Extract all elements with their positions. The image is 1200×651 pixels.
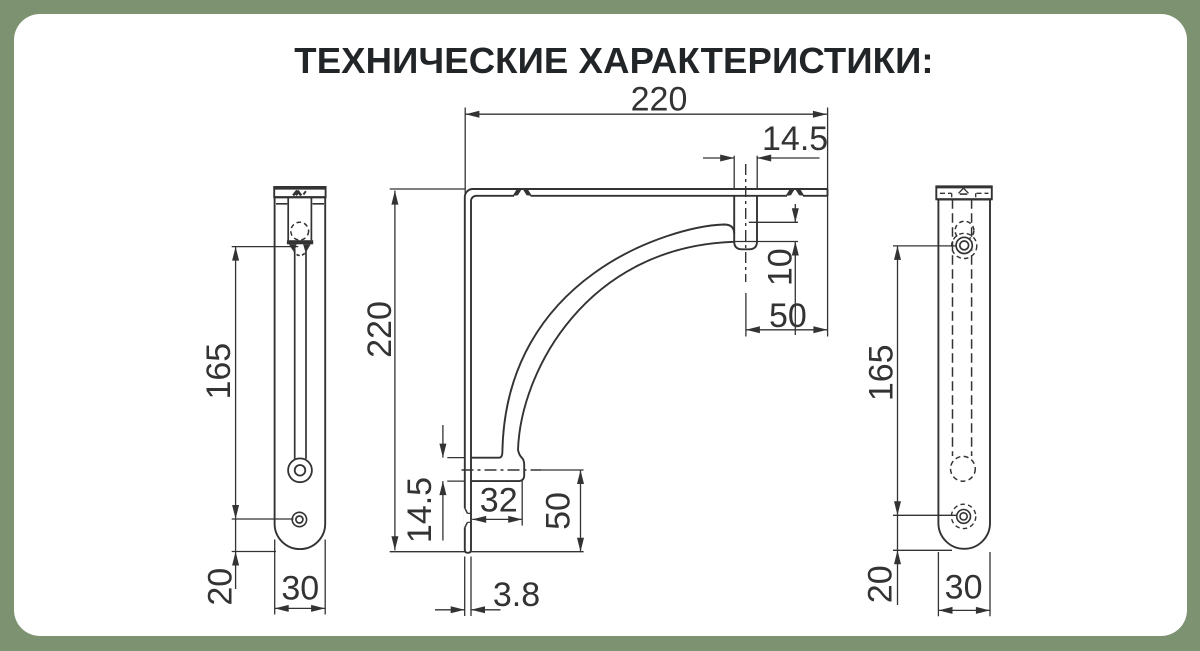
svg-text:30: 30 (281, 570, 319, 608)
svg-text:10: 10 (762, 248, 800, 286)
svg-text:50: 50 (540, 492, 578, 530)
svg-text:220: 220 (361, 301, 399, 358)
svg-text:20: 20 (202, 568, 240, 606)
svg-text:165: 165 (863, 344, 901, 401)
svg-text:14.5: 14.5 (762, 120, 828, 158)
svg-text:3.8: 3.8 (493, 576, 540, 614)
svg-text:220: 220 (631, 81, 688, 119)
svg-text:30: 30 (945, 569, 983, 607)
svg-text:ТЕХНИЧЕСКИЕ ХАРАКТЕРИСТИКИ:: ТЕХНИЧЕСКИЕ ХАРАКТЕРИСТИКИ: (294, 40, 933, 81)
svg-text:165: 165 (200, 343, 238, 400)
svg-text:20: 20 (862, 565, 900, 603)
svg-text:32: 32 (480, 482, 518, 520)
svg-text:50: 50 (769, 297, 807, 335)
svg-text:14.5: 14.5 (401, 477, 439, 543)
